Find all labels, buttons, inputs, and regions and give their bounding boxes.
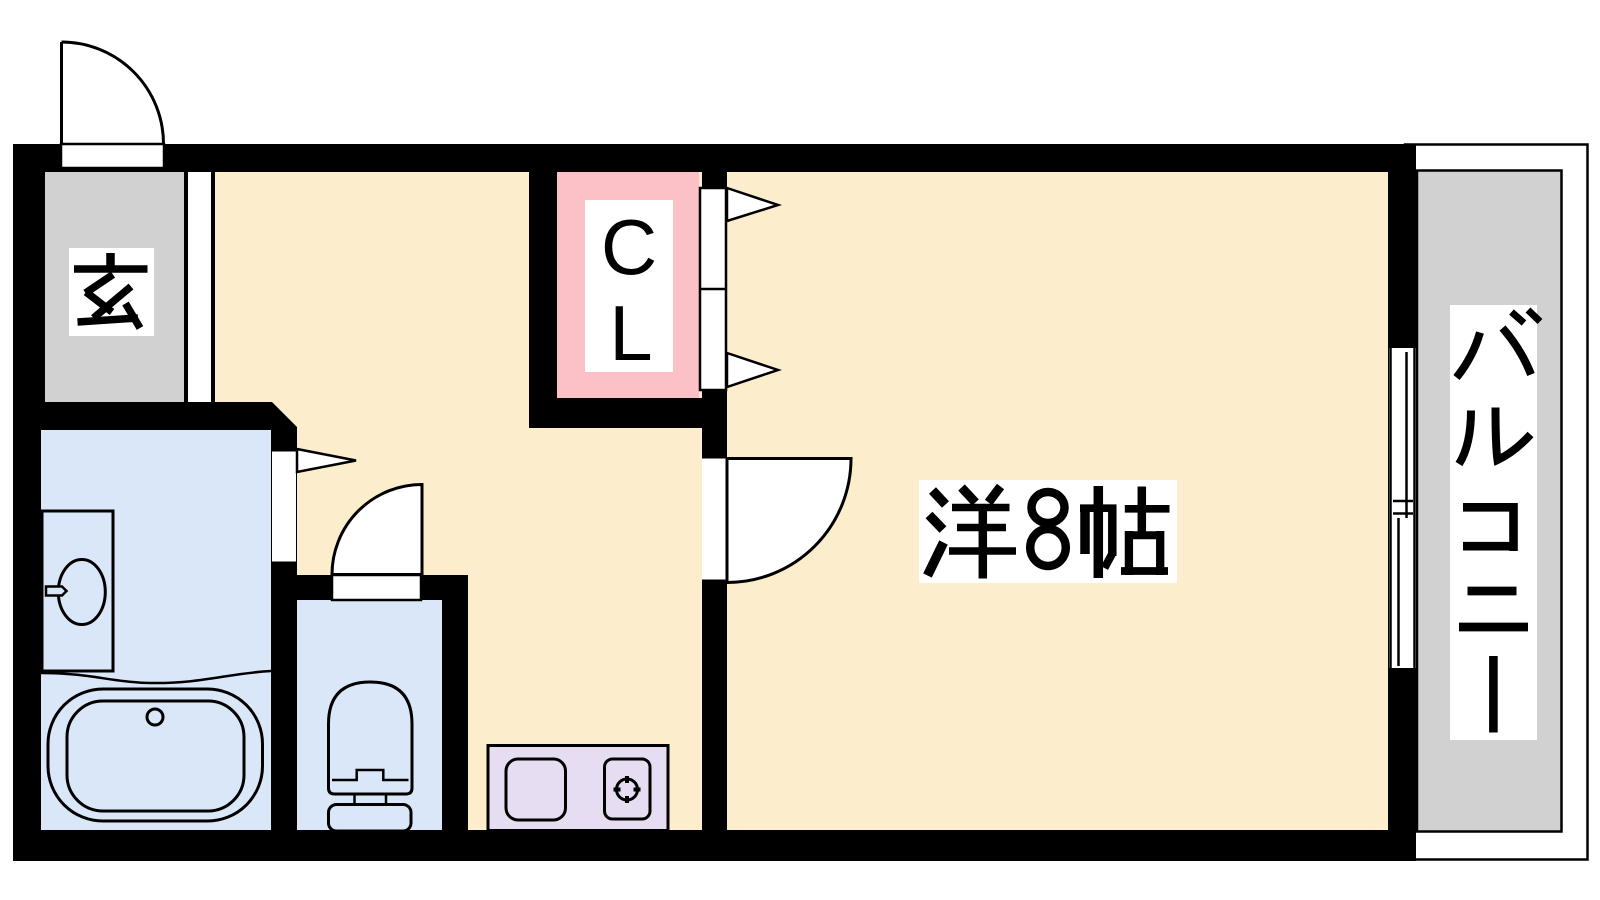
svg-text:C: C (601, 203, 657, 291)
svg-text:L: L (609, 289, 652, 377)
